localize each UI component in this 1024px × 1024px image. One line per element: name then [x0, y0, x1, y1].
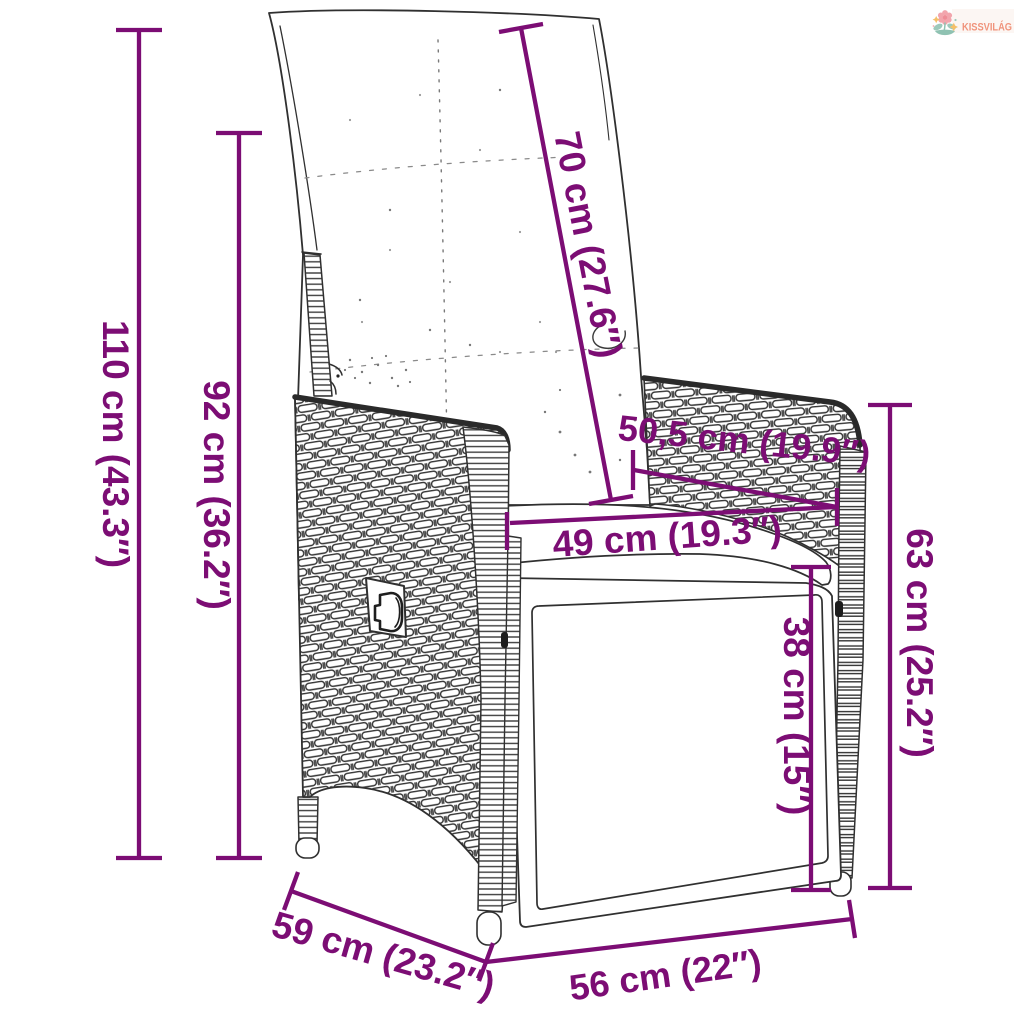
svg-text:63 cm (25.2″): 63 cm (25.2″) [899, 528, 940, 758]
svg-text:KISSVILÁG: KISSVILÁG [962, 21, 1012, 34]
svg-text:38 cm (15″): 38 cm (15″) [776, 617, 817, 816]
svg-text:92 cm (36.2″): 92 cm (36.2″) [196, 380, 237, 610]
svg-text:110 cm (43.3″): 110 cm (43.3″) [95, 320, 136, 568]
